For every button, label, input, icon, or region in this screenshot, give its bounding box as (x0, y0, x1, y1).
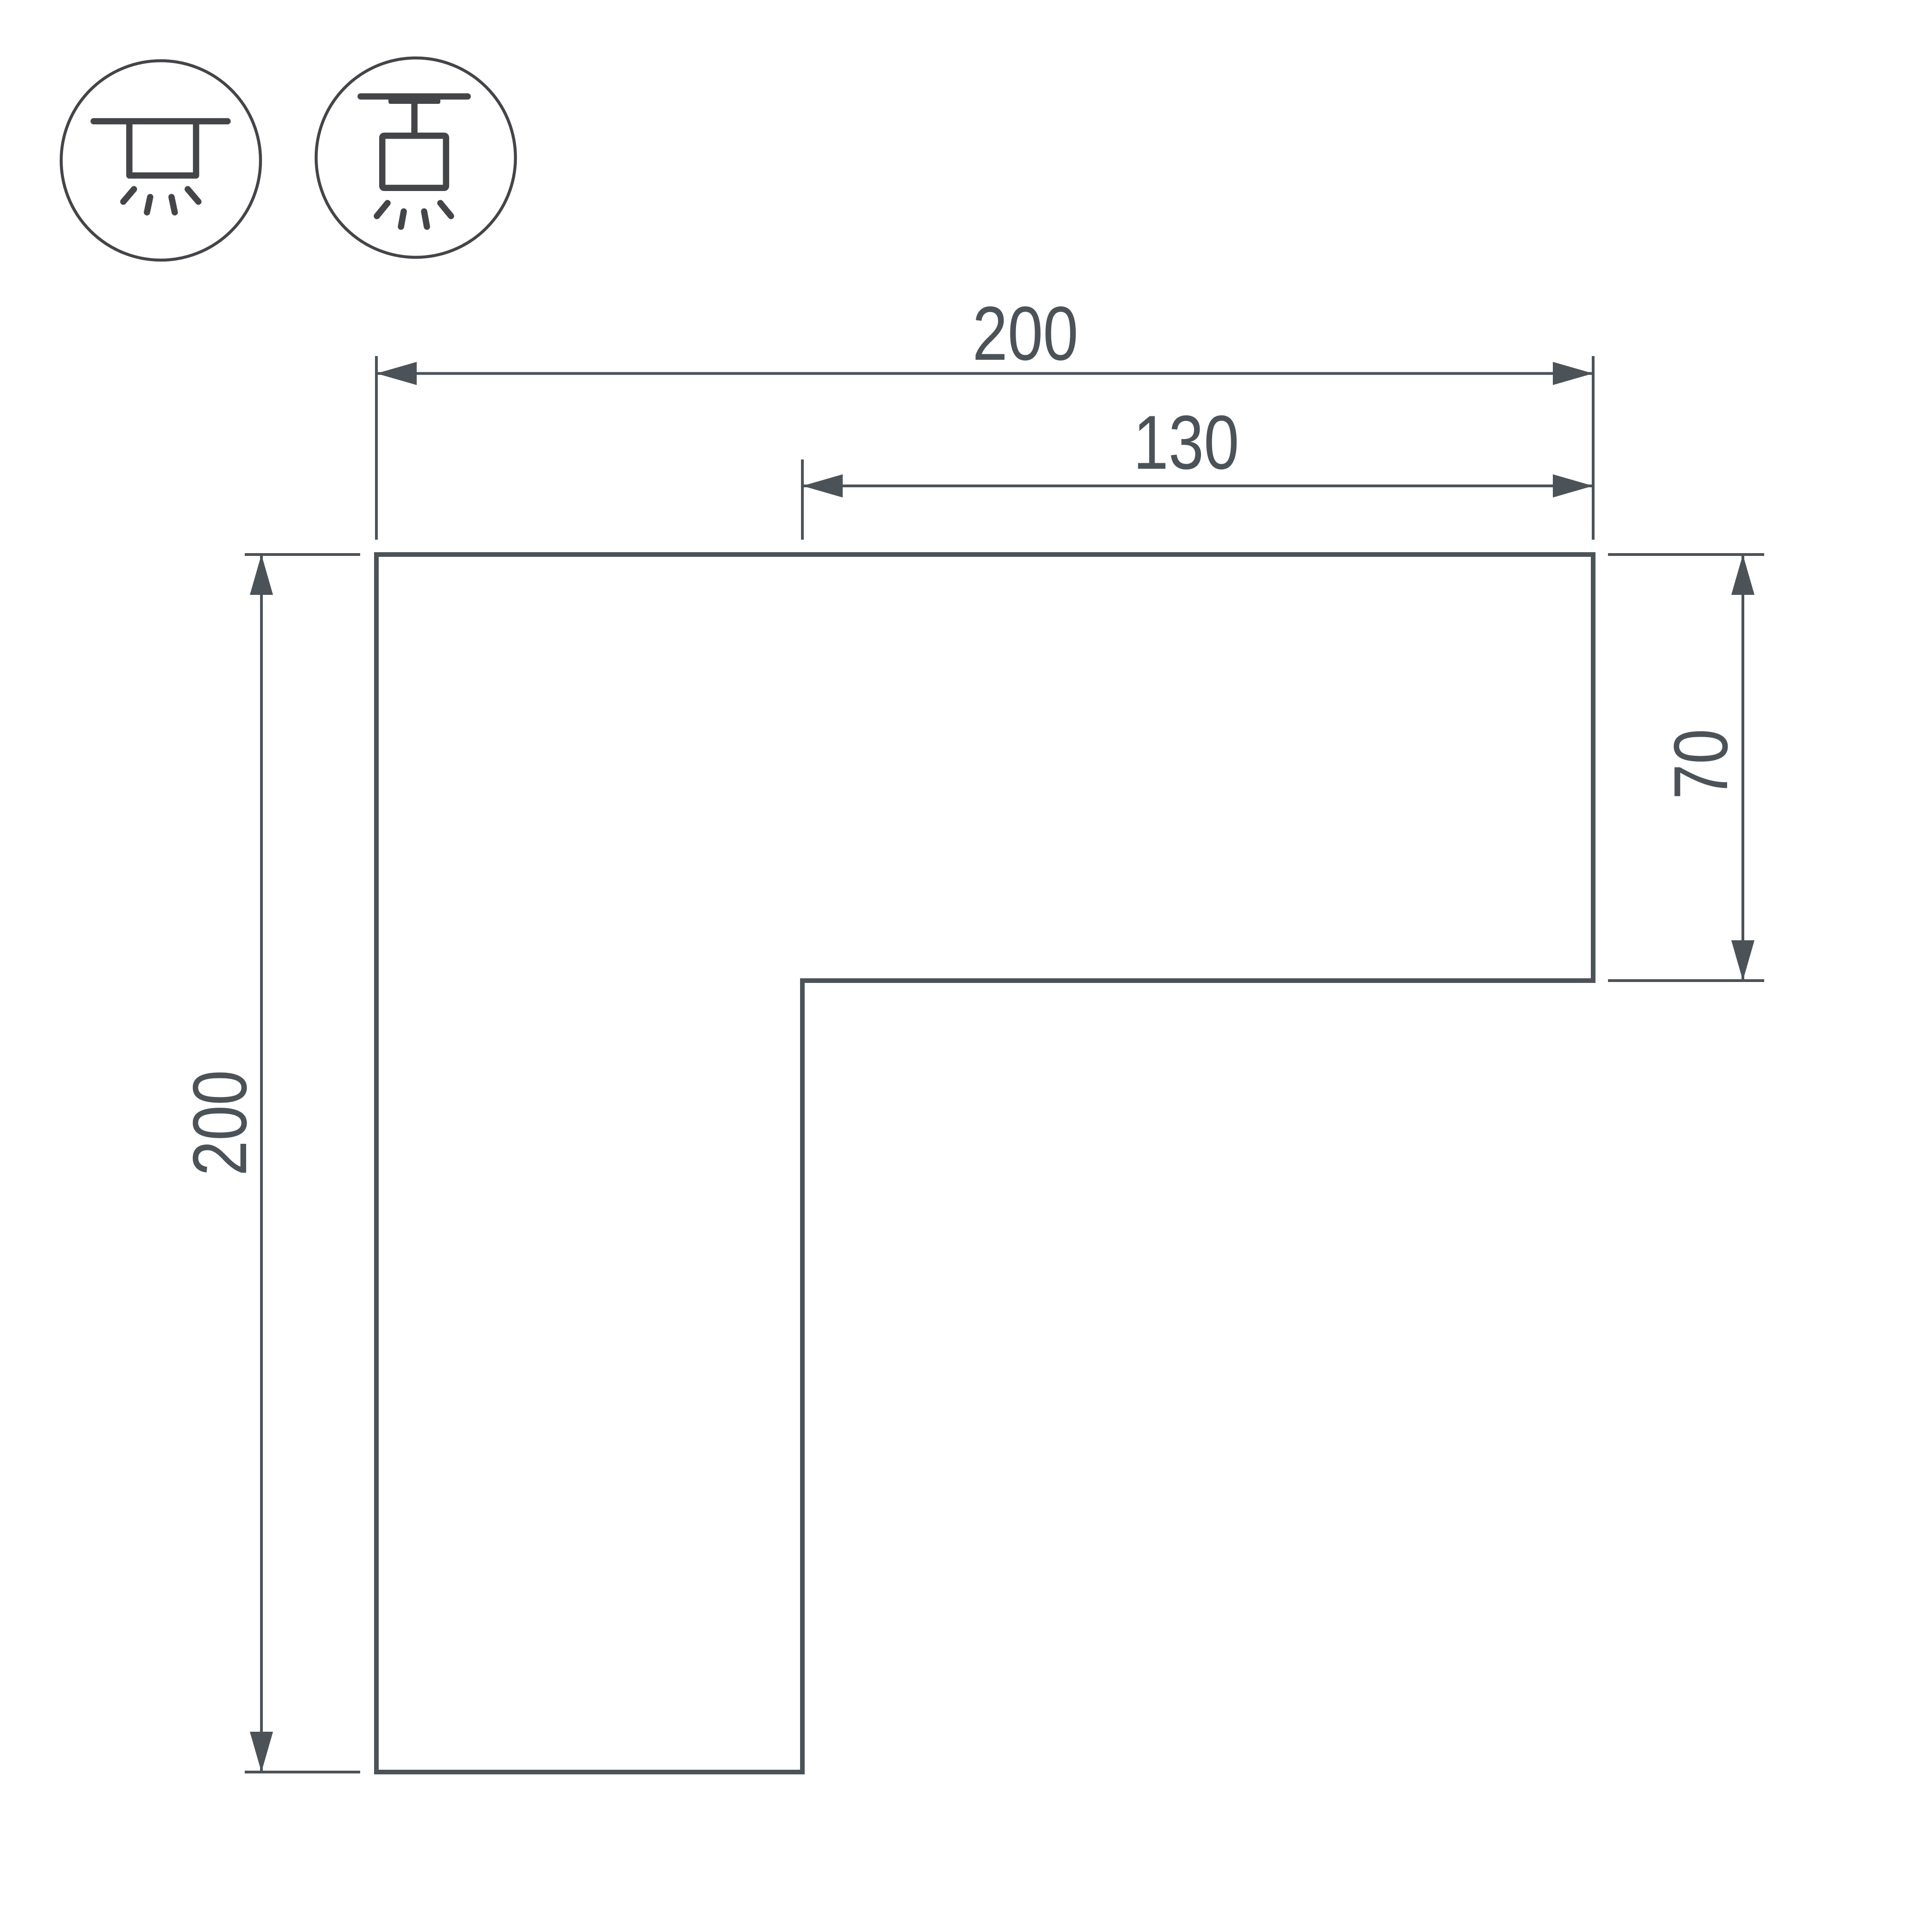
svg-text:200: 200 (972, 291, 1078, 376)
svg-text:130: 130 (1133, 400, 1239, 485)
svg-text:70: 70 (1659, 729, 1744, 799)
svg-text:200: 200 (178, 1070, 263, 1176)
